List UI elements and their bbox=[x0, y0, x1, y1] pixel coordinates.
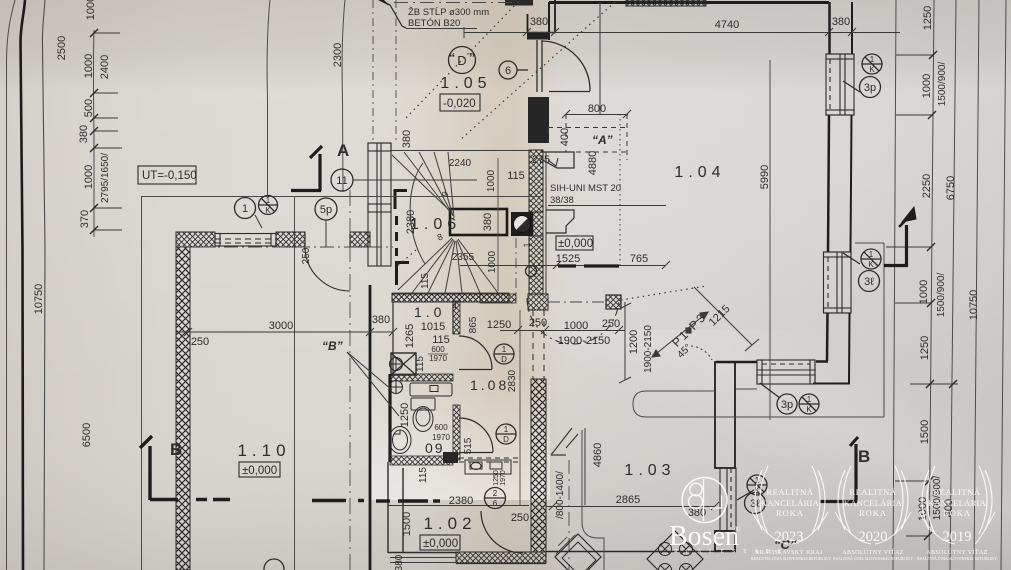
svg-text:1: 1 bbox=[504, 425, 509, 434]
svg-text:115: 115 bbox=[415, 356, 426, 372]
svg-text:ROKA: ROKA bbox=[776, 508, 804, 518]
svg-text:®: ® bbox=[734, 525, 740, 534]
svg-text:D: D bbox=[503, 435, 509, 444]
svg-text:1525: 1525 bbox=[556, 253, 580, 265]
svg-text:ŽB STĹP ø300 mm: ŽB STĹP ø300 mm bbox=[408, 7, 489, 18]
svg-text:KANCELÁRIA: KANCELÁRIA bbox=[761, 498, 820, 508]
svg-text:1000: 1000 bbox=[564, 320, 588, 332]
svg-text:1970: 1970 bbox=[429, 354, 447, 363]
svg-text:2250: 2250 bbox=[921, 174, 933, 198]
svg-text:1000: 1000 bbox=[85, 0, 97, 20]
svg-text:1250: 1250 bbox=[493, 470, 500, 486]
svg-text:2380: 2380 bbox=[405, 210, 417, 234]
svg-text:”: ” bbox=[469, 50, 476, 65]
svg-text:250: 250 bbox=[191, 336, 209, 348]
svg-text:“B”: “B” bbox=[322, 339, 343, 353]
svg-text:09: 09 bbox=[425, 440, 445, 456]
svg-text:“A”: “A” bbox=[592, 133, 613, 147]
svg-text:380: 380 bbox=[394, 554, 405, 570]
svg-text:6: 6 bbox=[505, 65, 511, 77]
svg-text:250: 250 bbox=[301, 247, 312, 264]
svg-text:250: 250 bbox=[529, 317, 547, 329]
svg-text:ABSOLÚTNY VÍŤAZ: ABSOLÚTNY VÍŤAZ bbox=[926, 548, 988, 556]
svg-text:115: 115 bbox=[418, 467, 429, 483]
svg-text:1.06: 1.06 bbox=[410, 216, 461, 233]
svg-text:BRATISLAVSKÝ KRAJ: BRATISLAVSKÝ KRAJ bbox=[755, 548, 823, 556]
svg-text:4880: 4880 bbox=[587, 151, 599, 175]
svg-text:1200: 1200 bbox=[628, 330, 640, 354]
svg-text:K: K bbox=[868, 260, 874, 269]
svg-text:ROKA: ROKA bbox=[859, 508, 887, 518]
svg-text:2023: 2023 bbox=[775, 529, 804, 545]
svg-text:11: 11 bbox=[336, 175, 347, 187]
svg-text:REALITNÁ ÚNIA SLOVENSKEJ REPUB: REALITNÁ ÚNIA SLOVENSKEJ REPUBLIKY bbox=[833, 556, 913, 561]
svg-text:2300: 2300 bbox=[332, 43, 344, 67]
svg-text:2500: 2500 bbox=[56, 36, 68, 60]
svg-text:1: 1 bbox=[522, 242, 532, 247]
svg-text:REALITNÁ: REALITNÁ bbox=[933, 487, 981, 497]
svg-text:K: K bbox=[265, 206, 271, 215]
svg-text:6750: 6750 bbox=[945, 176, 957, 200]
svg-text:D: D bbox=[501, 355, 507, 364]
svg-text:6: 6 bbox=[493, 499, 498, 508]
svg-text:380: 380 bbox=[401, 130, 413, 148]
svg-text:1.05: 1.05 bbox=[440, 75, 491, 92]
svg-text:380: 380 bbox=[372, 314, 390, 326]
svg-text:REALITNÁ: REALITNÁ bbox=[766, 487, 814, 497]
svg-text:4740: 4740 bbox=[715, 19, 739, 31]
svg-text:ABSOLÚTNY VÍŤAZ: ABSOLÚTNY VÍŤAZ bbox=[842, 548, 904, 556]
svg-text:250: 250 bbox=[602, 318, 620, 330]
svg-text:250: 250 bbox=[511, 512, 529, 524]
svg-text:1000: 1000 bbox=[918, 280, 930, 304]
svg-text:1900-2150: 1900-2150 bbox=[643, 325, 654, 373]
svg-text:3p: 3p bbox=[781, 399, 793, 411]
svg-text:600: 600 bbox=[431, 345, 445, 354]
svg-text:1: 1 bbox=[869, 250, 874, 259]
svg-text:±0,000: ±0,000 bbox=[242, 465, 277, 477]
svg-text:-0,020: -0,020 bbox=[443, 98, 476, 110]
svg-text:380: 380 bbox=[832, 16, 850, 28]
svg-text:“: “ bbox=[449, 50, 456, 65]
svg-text:1250: 1250 bbox=[922, 6, 934, 30]
svg-text:800: 800 bbox=[588, 103, 606, 115]
svg-text:2355: 2355 bbox=[452, 252, 475, 263]
svg-text:1265: 1265 bbox=[404, 324, 416, 348]
svg-text:REALITNÁ ÚNIA SLOVENSKEJ REPUB: REALITNÁ ÚNIA SLOVENSKEJ REPUBLIKY bbox=[917, 556, 997, 561]
svg-text:REALITNÁ ÚNIA SLOVENSKEJ REPUB: REALITNÁ ÚNIA SLOVENSKEJ REPUBLIKY bbox=[751, 556, 831, 561]
svg-text:3ℓ: 3ℓ bbox=[864, 276, 874, 288]
svg-text:1500/900/: 1500/900/ bbox=[937, 62, 948, 107]
svg-text:1.10: 1.10 bbox=[237, 441, 290, 460]
svg-text:1.04: 1.04 bbox=[674, 164, 725, 181]
svg-text:1015: 1015 bbox=[421, 321, 445, 333]
svg-text:2380: 2380 bbox=[449, 495, 473, 507]
svg-text:500: 500 bbox=[83, 99, 95, 117]
svg-text:1: 1 bbox=[242, 203, 248, 215]
svg-text:KANCELÁRIA: KANCELÁRIA bbox=[844, 498, 903, 508]
svg-text:±0,000: ±0,000 bbox=[558, 238, 593, 250]
svg-text:/800-1400/: /800-1400/ bbox=[555, 471, 566, 519]
svg-text:2019: 2019 bbox=[943, 529, 972, 545]
svg-text:D: D bbox=[457, 53, 466, 68]
svg-text:2: 2 bbox=[493, 489, 498, 498]
svg-text:380: 380 bbox=[482, 213, 494, 231]
svg-text:1.02: 1.02 bbox=[423, 514, 476, 533]
svg-text:B: B bbox=[858, 447, 870, 466]
svg-text:1250: 1250 bbox=[919, 336, 931, 360]
svg-text:2830: 2830 bbox=[507, 369, 518, 392]
svg-text:1000: 1000 bbox=[921, 74, 933, 98]
svg-text:2400: 2400 bbox=[99, 55, 111, 79]
svg-text:10750: 10750 bbox=[33, 284, 45, 315]
svg-text:1500: 1500 bbox=[401, 512, 413, 536]
svg-text:5p: 5p bbox=[320, 204, 332, 216]
svg-text:ROKA: ROKA bbox=[943, 508, 971, 518]
svg-text:1: 1 bbox=[870, 55, 875, 64]
svg-text:1.0: 1.0 bbox=[414, 304, 445, 320]
svg-text:1: 1 bbox=[807, 395, 812, 404]
svg-text:6500: 6500 bbox=[81, 423, 93, 447]
svg-text:1970: 1970 bbox=[500, 470, 507, 486]
svg-text:4: 4 bbox=[452, 301, 457, 311]
svg-text:±0,000: ±0,000 bbox=[423, 538, 458, 550]
svg-text:275: 275 bbox=[532, 154, 550, 166]
svg-text:BETÓN B20: BETÓN B20 bbox=[408, 18, 460, 29]
svg-text:1250: 1250 bbox=[399, 403, 411, 427]
svg-text:600: 600 bbox=[434, 423, 448, 432]
svg-text:Bosen: Bosen bbox=[669, 521, 739, 552]
svg-text:115: 115 bbox=[507, 170, 525, 182]
svg-text:1.08: 1.08 bbox=[470, 377, 509, 393]
svg-text:K: K bbox=[806, 405, 812, 414]
svg-text:4860: 4860 bbox=[592, 443, 604, 467]
svg-text:1: 1 bbox=[266, 196, 271, 205]
svg-text:1000: 1000 bbox=[83, 165, 95, 189]
svg-text:380: 380 bbox=[530, 16, 548, 28]
svg-text:1000: 1000 bbox=[487, 250, 498, 273]
svg-text:2020: 2020 bbox=[859, 529, 888, 545]
svg-text:2240: 2240 bbox=[449, 158, 472, 169]
svg-text:1900-2150: 1900-2150 bbox=[558, 335, 611, 347]
svg-text:115: 115 bbox=[420, 273, 431, 289]
svg-text:1500/900/: 1500/900/ bbox=[936, 273, 947, 318]
svg-text:1000: 1000 bbox=[83, 54, 95, 78]
svg-text:400: 400 bbox=[559, 128, 571, 146]
svg-text:765: 765 bbox=[630, 253, 648, 265]
svg-text:2795/1650/: 2795/1650/ bbox=[100, 153, 111, 203]
svg-text:A: A bbox=[337, 141, 349, 160]
svg-text:K: K bbox=[869, 65, 875, 74]
svg-text:1: 1 bbox=[502, 345, 507, 354]
svg-text:38/38: 38/38 bbox=[550, 195, 574, 206]
svg-text:865: 865 bbox=[468, 316, 479, 333]
svg-text:SIH-UNI MST 20: SIH-UNI MST 20 bbox=[550, 183, 621, 194]
svg-text:370: 370 bbox=[79, 210, 91, 228]
svg-text:1500: 1500 bbox=[919, 420, 931, 444]
svg-text:380: 380 bbox=[78, 125, 90, 143]
svg-text:B: B bbox=[170, 440, 182, 459]
svg-text:3000: 3000 bbox=[269, 320, 293, 332]
svg-text:1970: 1970 bbox=[432, 433, 450, 442]
svg-text:1250: 1250 bbox=[487, 319, 511, 331]
svg-text:2865: 2865 bbox=[616, 494, 640, 506]
svg-text:5990: 5990 bbox=[759, 165, 771, 189]
svg-text:10750: 10750 bbox=[968, 290, 980, 321]
svg-text:3p: 3p bbox=[864, 82, 876, 94]
svg-text:REALITNÁ: REALITNÁ bbox=[849, 487, 897, 497]
svg-text:1.03: 1.03 bbox=[624, 462, 675, 479]
svg-text:UT=-0,150: UT=-0,150 bbox=[142, 170, 197, 182]
svg-text:1000: 1000 bbox=[486, 169, 497, 192]
svg-text:515: 515 bbox=[463, 437, 474, 454]
svg-text:KANCELÁRIA: KANCELÁRIA bbox=[928, 498, 987, 508]
